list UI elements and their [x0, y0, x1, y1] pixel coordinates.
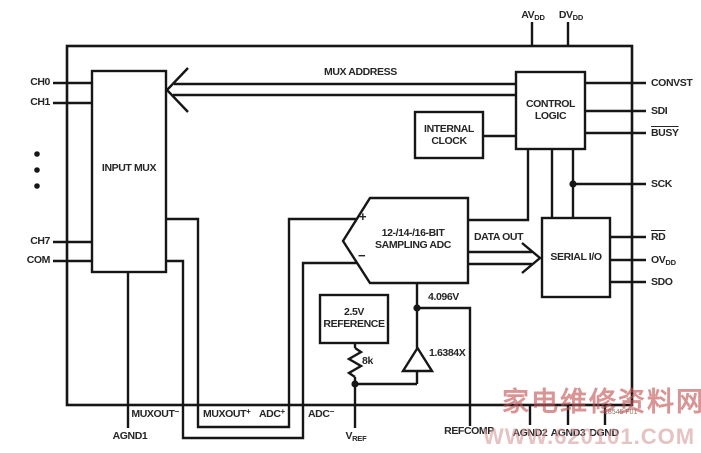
- ellipsis-dot-3: [34, 183, 40, 189]
- pin-label-adc-plus: ADC+: [240, 406, 285, 420]
- ellipsis-dot-2: [34, 167, 40, 173]
- pin-label-adc-minus: ADC−: [308, 406, 334, 420]
- amplifier-triangle: [403, 348, 432, 371]
- bus-arrowhead-left: [167, 68, 188, 112]
- pin-label-dvdd: DVDD: [550, 9, 592, 24]
- adc-label: 12-/14-/16-BITSAMPLING ADC: [361, 227, 465, 251]
- bus-arrowhead-right: [522, 243, 540, 273]
- ellipsis-dot-1: [34, 151, 40, 157]
- pin-label-sdo: SDO: [651, 276, 673, 288]
- pin-label-ch1: CH1: [6, 96, 50, 108]
- pin-label-sdi: SDI: [651, 105, 667, 117]
- pin-label-muxout-minus: MUXOUT−: [120, 406, 179, 420]
- serial-io-label: SERIAL I/O: [542, 251, 610, 263]
- junction-dot-sck: [569, 180, 576, 187]
- watermark-chinese: 家电维修资料网: [502, 396, 701, 408]
- mux-address-label: MUX ADDRESS: [324, 66, 397, 78]
- pin-label-ch7: CH7: [6, 235, 50, 247]
- reference-label: 2.5VREFERENCE: [320, 306, 388, 330]
- pin-label-com: COM: [6, 254, 50, 266]
- junction-dot-vref: [351, 380, 358, 387]
- internal-clock-label: INTERNALCLOCK: [415, 123, 483, 147]
- adc-minus-sign: −: [358, 250, 366, 262]
- pin-label-sck: SCK: [651, 178, 672, 190]
- pin-label-busy: BUSY: [651, 127, 679, 139]
- pin-label-ovdd: OVDD: [651, 254, 676, 269]
- input-mux-label: INPUT MUX: [92, 162, 166, 174]
- pin-label-avdd: AVDD: [512, 9, 554, 24]
- pin-label-ch0: CH0: [6, 76, 50, 88]
- pin-label-rd: RD: [651, 231, 665, 243]
- ref-voltage-label: 4.096V: [428, 291, 459, 303]
- resistor-zigzag: [349, 348, 361, 377]
- block-diagram: CH0 CH1 CH7 COM AVDD DVDD CONVST SDI BUS…: [0, 0, 701, 453]
- adc-plus-sign: +: [359, 211, 367, 223]
- junction-dot-refcomp: [413, 304, 420, 311]
- resistor-value-label: 8k: [362, 355, 373, 367]
- amplifier-gain-label: 1.6384X: [429, 347, 465, 359]
- pin-label-convst: CONVST: [651, 77, 692, 89]
- data-out-label: DATA OUT: [474, 231, 523, 243]
- control-logic-label: CONTROLLOGIC: [516, 98, 585, 122]
- pin-label-vref: VREF: [332, 430, 380, 445]
- wire-control-to-adc: [468, 149, 528, 220]
- watermark-url: WWW.620101.COM: [483, 431, 695, 443]
- pin-label-agnd1: AGND1: [104, 430, 156, 442]
